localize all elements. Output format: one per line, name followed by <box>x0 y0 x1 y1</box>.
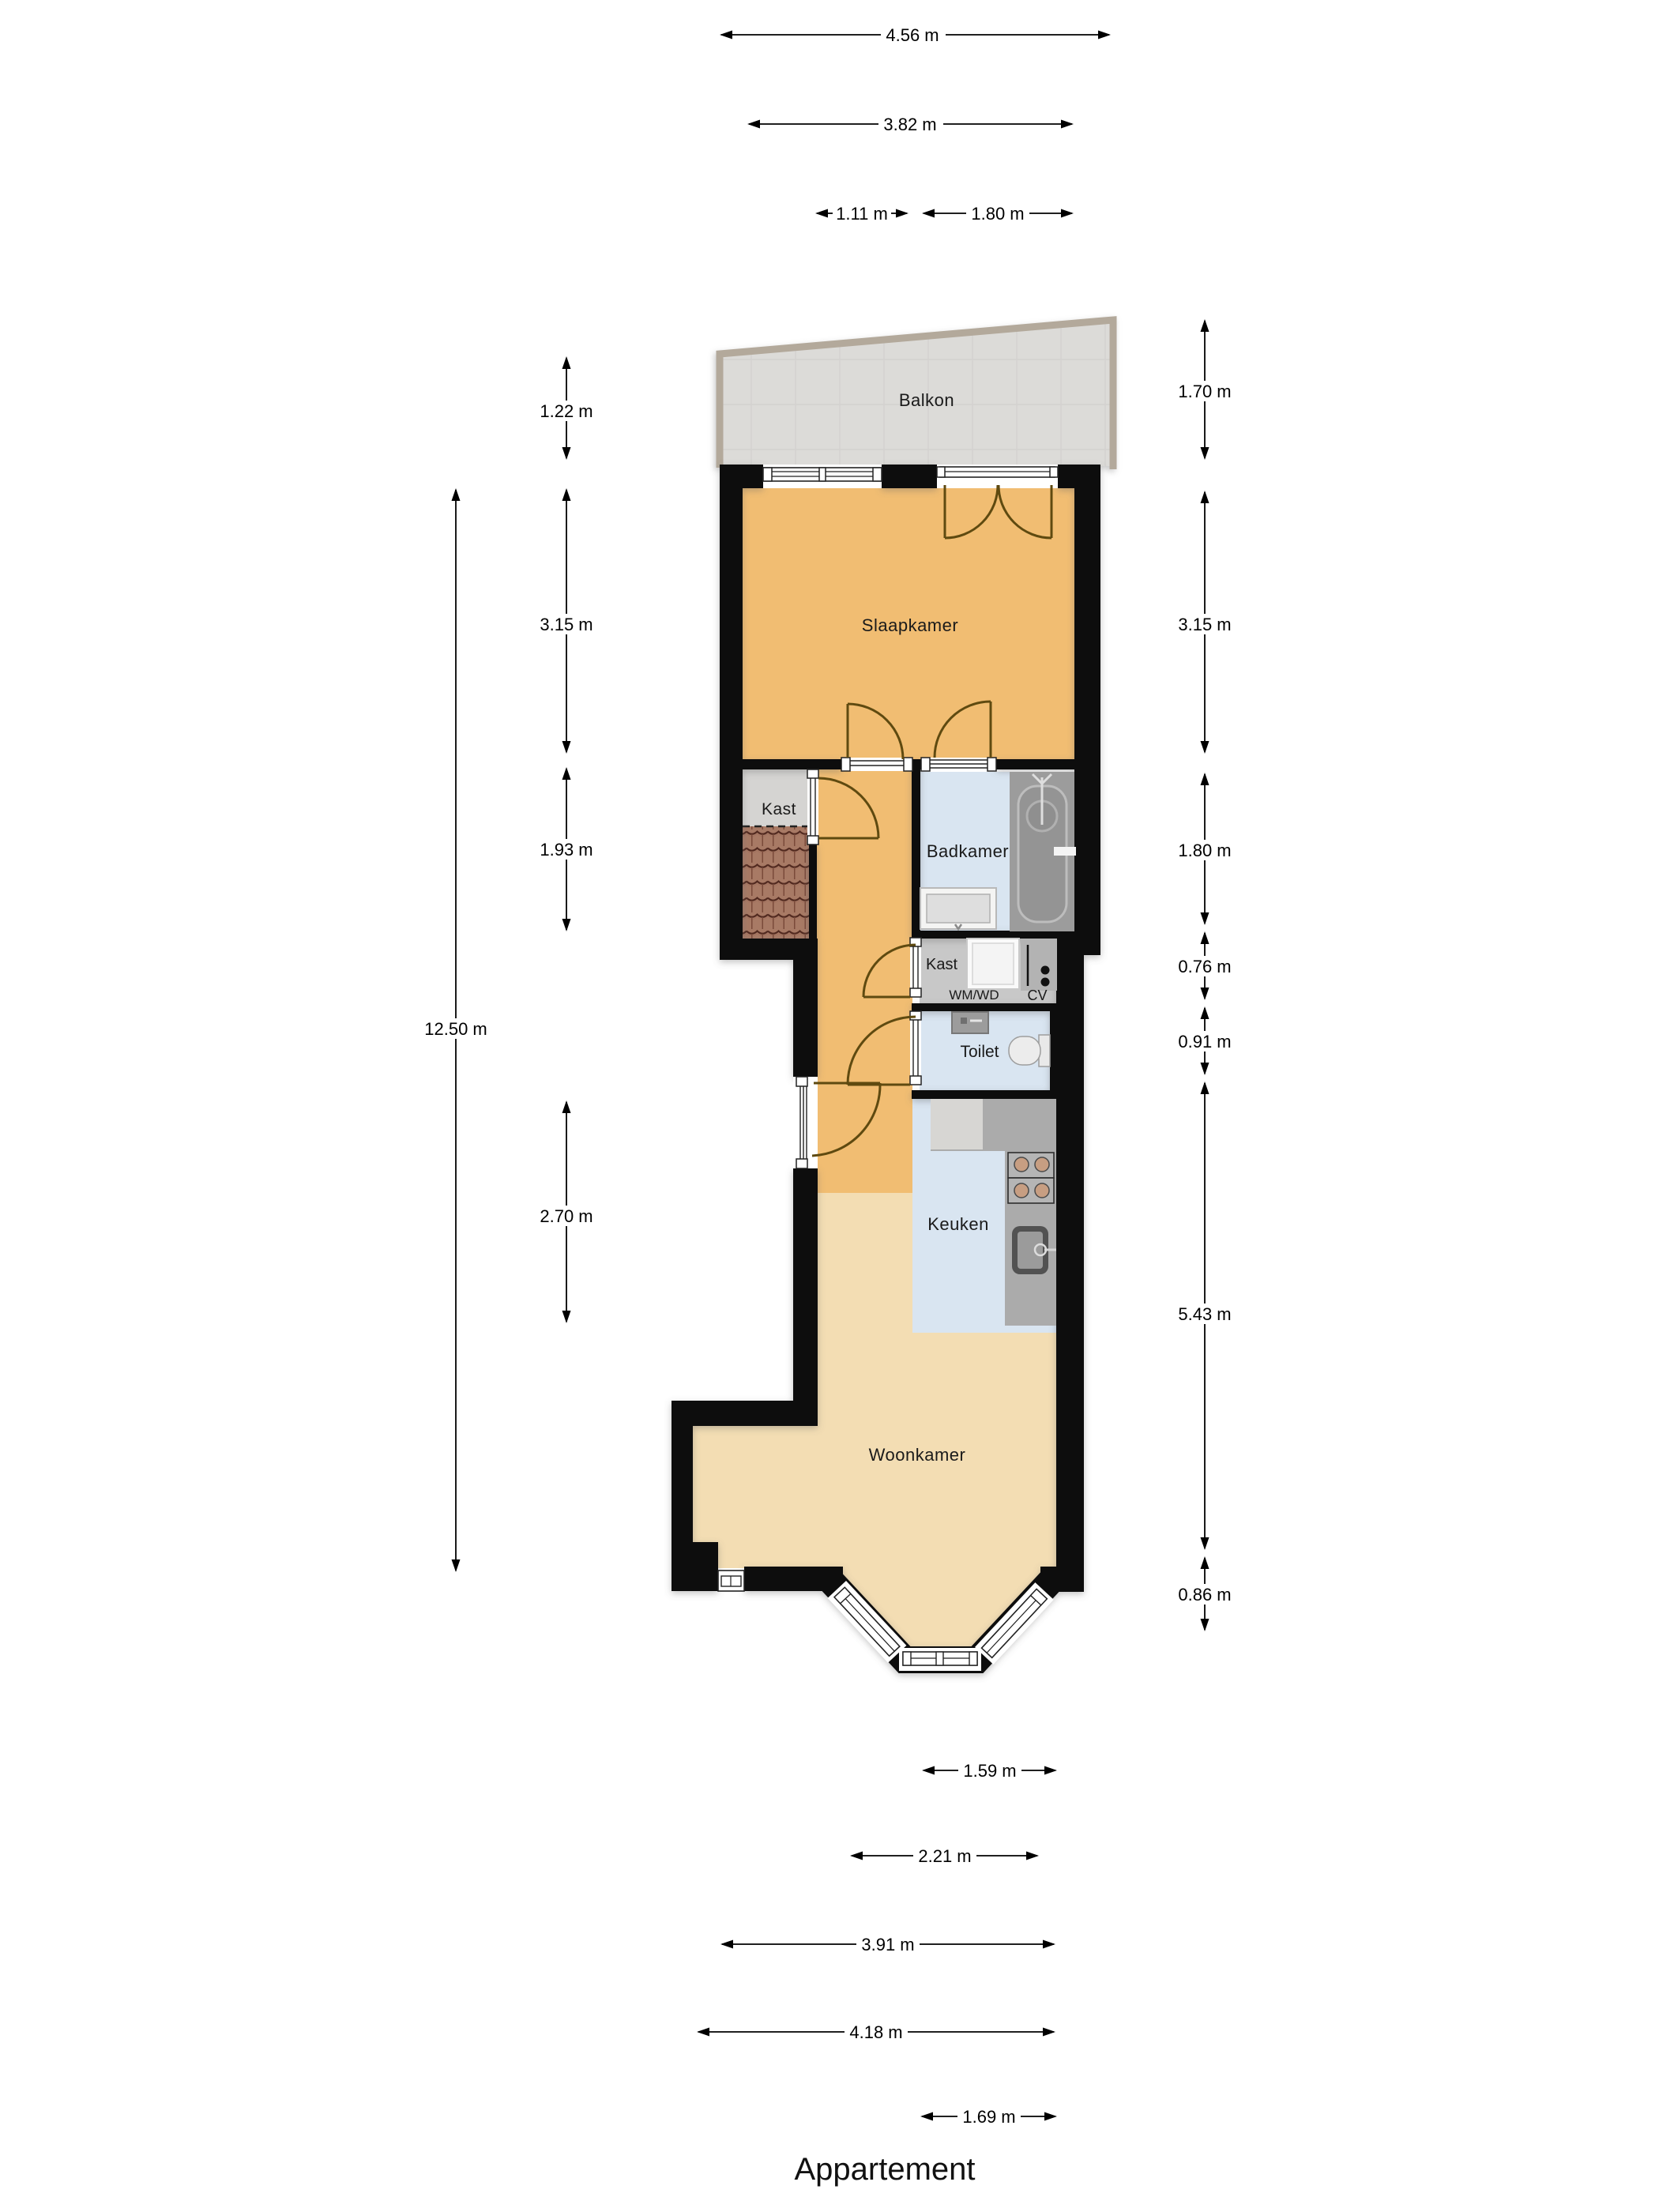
svg-text:2.70 m: 2.70 m <box>540 1206 592 1226</box>
svg-text:1.70 m: 1.70 m <box>1178 382 1231 401</box>
svg-text:1.22 m: 1.22 m <box>540 401 592 421</box>
svg-text:1.11 m: 1.11 m <box>836 204 888 224</box>
svg-text:Keuken: Keuken <box>927 1214 989 1234</box>
svg-text:4.18 m: 4.18 m <box>849 2022 902 2042</box>
svg-text:Badkamer: Badkamer <box>927 841 1009 861</box>
svg-text:3.82 m: 3.82 m <box>883 115 936 134</box>
svg-text:0.76 m: 0.76 m <box>1178 957 1231 976</box>
svg-text:0.91 m: 0.91 m <box>1178 1032 1231 1051</box>
svg-text:1.80 m: 1.80 m <box>1178 841 1231 860</box>
svg-text:3.15 m: 3.15 m <box>1178 615 1231 634</box>
svg-text:3.91 m: 3.91 m <box>861 1935 914 1954</box>
svg-text:CV: CV <box>1027 987 1047 1003</box>
svg-text:3.15 m: 3.15 m <box>540 615 592 634</box>
svg-text:Balkon: Balkon <box>899 390 954 410</box>
svg-text:1.69 m: 1.69 m <box>962 2107 1015 2127</box>
svg-text:WM/WD: WM/WD <box>949 987 999 1003</box>
svg-text:Slaapkamer: Slaapkamer <box>862 615 958 635</box>
svg-text:5.43 m: 5.43 m <box>1178 1304 1231 1324</box>
svg-text:12.50 m: 12.50 m <box>424 1019 487 1039</box>
svg-text:1.93 m: 1.93 m <box>540 840 592 860</box>
svg-text:Kast: Kast <box>762 800 796 818</box>
svg-text:4.56 m: 4.56 m <box>886 25 939 45</box>
svg-text:Appartement: Appartement <box>794 2152 975 2187</box>
svg-text:2.21 m: 2.21 m <box>918 1846 971 1866</box>
svg-text:0.86 m: 0.86 m <box>1178 1585 1231 1604</box>
svg-text:Toilet: Toilet <box>960 1043 999 1061</box>
svg-text:1.80 m: 1.80 m <box>971 204 1024 224</box>
svg-text:Kast: Kast <box>926 956 957 973</box>
svg-text:Woonkamer: Woonkamer <box>869 1445 966 1465</box>
svg-text:1.59 m: 1.59 m <box>963 1761 1016 1781</box>
